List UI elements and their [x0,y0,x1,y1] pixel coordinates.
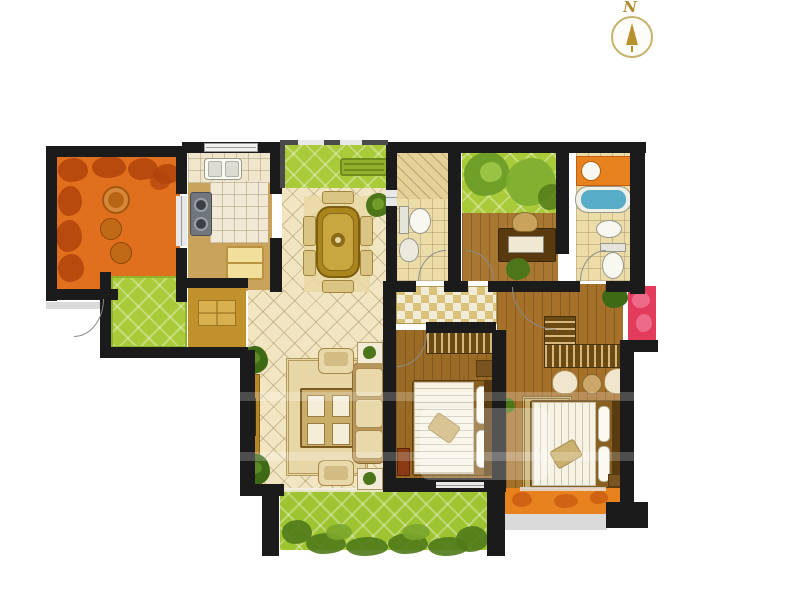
floorplan-items [0,0,800,611]
green-balcony-foliage [402,524,430,540]
green-balcony-foliage [346,537,388,556]
window-line [436,485,484,486]
window-marker [340,140,362,145]
window-marker [298,140,324,145]
window-marker [386,190,397,206]
wardrobe [544,344,626,368]
washbasin [596,220,622,238]
stool [552,370,578,394]
red-balcony-foliage [636,314,652,332]
wall [606,281,645,292]
window-line [386,197,397,198]
wardrobe [426,332,494,354]
armchair-seat [324,352,348,366]
terrace-foliage [150,172,170,190]
watermark-blob [420,408,550,480]
terrace-foliage [56,220,82,252]
wall [186,278,248,288]
wall [176,146,187,194]
watermark-band [120,392,680,401]
floor-plan: N [0,0,800,611]
garden-tree-highlight [480,162,502,182]
window-marker [520,487,606,491]
bathtub-water [581,190,626,209]
wall [240,350,255,492]
wall [46,146,57,301]
cabinet-line [216,300,218,326]
red-balcony-foliage [632,292,650,308]
plant [363,472,376,485]
bath1-tiled-zone [396,153,450,199]
dining-chair [303,216,316,246]
wall [426,322,496,333]
wall [100,272,111,358]
wall [630,142,645,294]
terrace-chair [110,242,132,264]
wall [448,152,461,282]
sofa-cushion [355,399,383,428]
stove-burner [194,198,208,212]
bench-slat [344,169,384,171]
coffee-table-pane [332,423,350,445]
pedestal-sink [399,238,419,262]
vanity-sink [581,161,601,181]
wall [270,238,282,292]
sink-basin [208,161,222,177]
dining-chair [322,191,354,204]
wall [386,206,397,292]
bench-slat [344,163,384,165]
wall [46,146,186,157]
wall [444,281,468,292]
wall [176,248,187,302]
green-balcony-foliage [326,524,352,540]
kitchen-floor-tiles [210,181,268,243]
monitor [508,236,544,253]
watermark-band [120,452,680,461]
coffee-table-pane [307,423,325,445]
toilet-bowl [409,208,431,234]
wall [487,484,505,556]
wall [606,502,648,528]
wall [386,142,397,192]
window-line [181,196,182,246]
orange-balcony-foliage [512,492,532,507]
terrace-foliage [58,254,84,282]
green-balcony-foliage [456,526,488,552]
wall [390,142,646,153]
terrace-chair [100,218,122,240]
terrace-foliage [58,186,82,216]
dining-chair [322,280,354,293]
dining-chair [303,250,316,276]
plant [363,346,376,359]
desk-chair [512,212,538,232]
terrace-foliage [58,158,88,182]
dining-chair [360,216,373,246]
pillow [598,406,610,442]
plant [506,258,530,280]
window-line [206,147,256,148]
sink-basin [225,161,239,177]
toilet-tank [399,206,409,234]
stool [582,374,602,394]
terrace-table-top [108,192,124,208]
dining-chair [360,250,373,276]
armchair-seat [324,466,348,480]
wall [620,350,634,502]
dining-table-dot [335,237,341,243]
wall [556,152,569,254]
balcony-rail [280,140,285,188]
balcony-shadow [505,514,607,530]
wall [262,484,279,556]
wall [100,347,248,358]
plant-highlight [372,198,384,210]
balcony-bench [340,158,388,176]
fridge-divider [228,262,262,264]
terrace-foliage [92,156,126,178]
stove-burner [194,217,208,231]
orange-balcony-foliage [554,494,578,508]
